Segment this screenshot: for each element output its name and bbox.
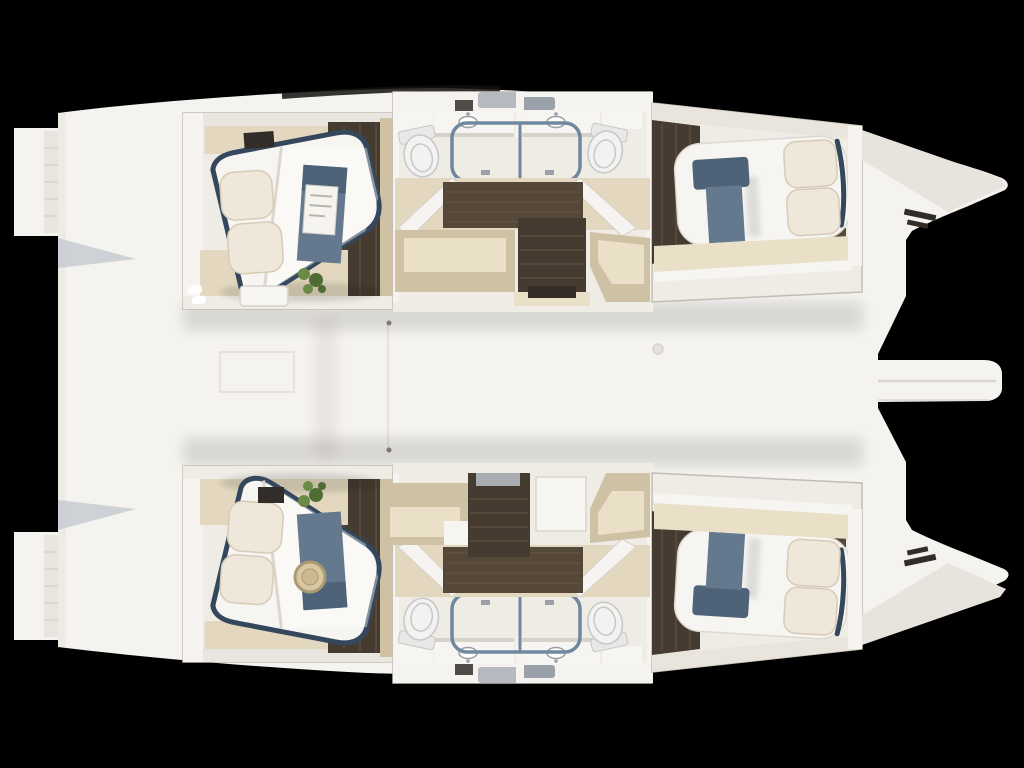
lower-white-counter xyxy=(536,477,586,531)
catamaran xyxy=(14,88,1009,683)
lower-stair-pad xyxy=(476,473,520,486)
upper-magazine xyxy=(303,185,338,235)
sun-hat-crown xyxy=(302,569,318,585)
lower-swim-platform xyxy=(14,532,58,640)
lower-cutaway-shadow xyxy=(183,438,863,466)
floorplan-svg xyxy=(0,0,1024,768)
upper-port-cabinet-top xyxy=(404,238,506,272)
deck-fitting xyxy=(653,344,663,354)
lower-sun-hat xyxy=(295,562,325,592)
slipper-2 xyxy=(192,295,207,304)
upper-aft-cabin-tv xyxy=(243,131,274,149)
upper-companionway-step xyxy=(528,286,576,298)
lower-aft-cabin-tv xyxy=(258,487,284,503)
lower-small-box xyxy=(444,521,470,545)
stern-edge-shade xyxy=(58,113,66,647)
deck-soft-band xyxy=(315,318,337,458)
catamaran-floorplan-scene xyxy=(0,0,1024,768)
upper-swim-platform xyxy=(14,128,58,236)
upper-aft-cabin-bench xyxy=(240,286,288,306)
magazine-cover xyxy=(303,185,338,235)
